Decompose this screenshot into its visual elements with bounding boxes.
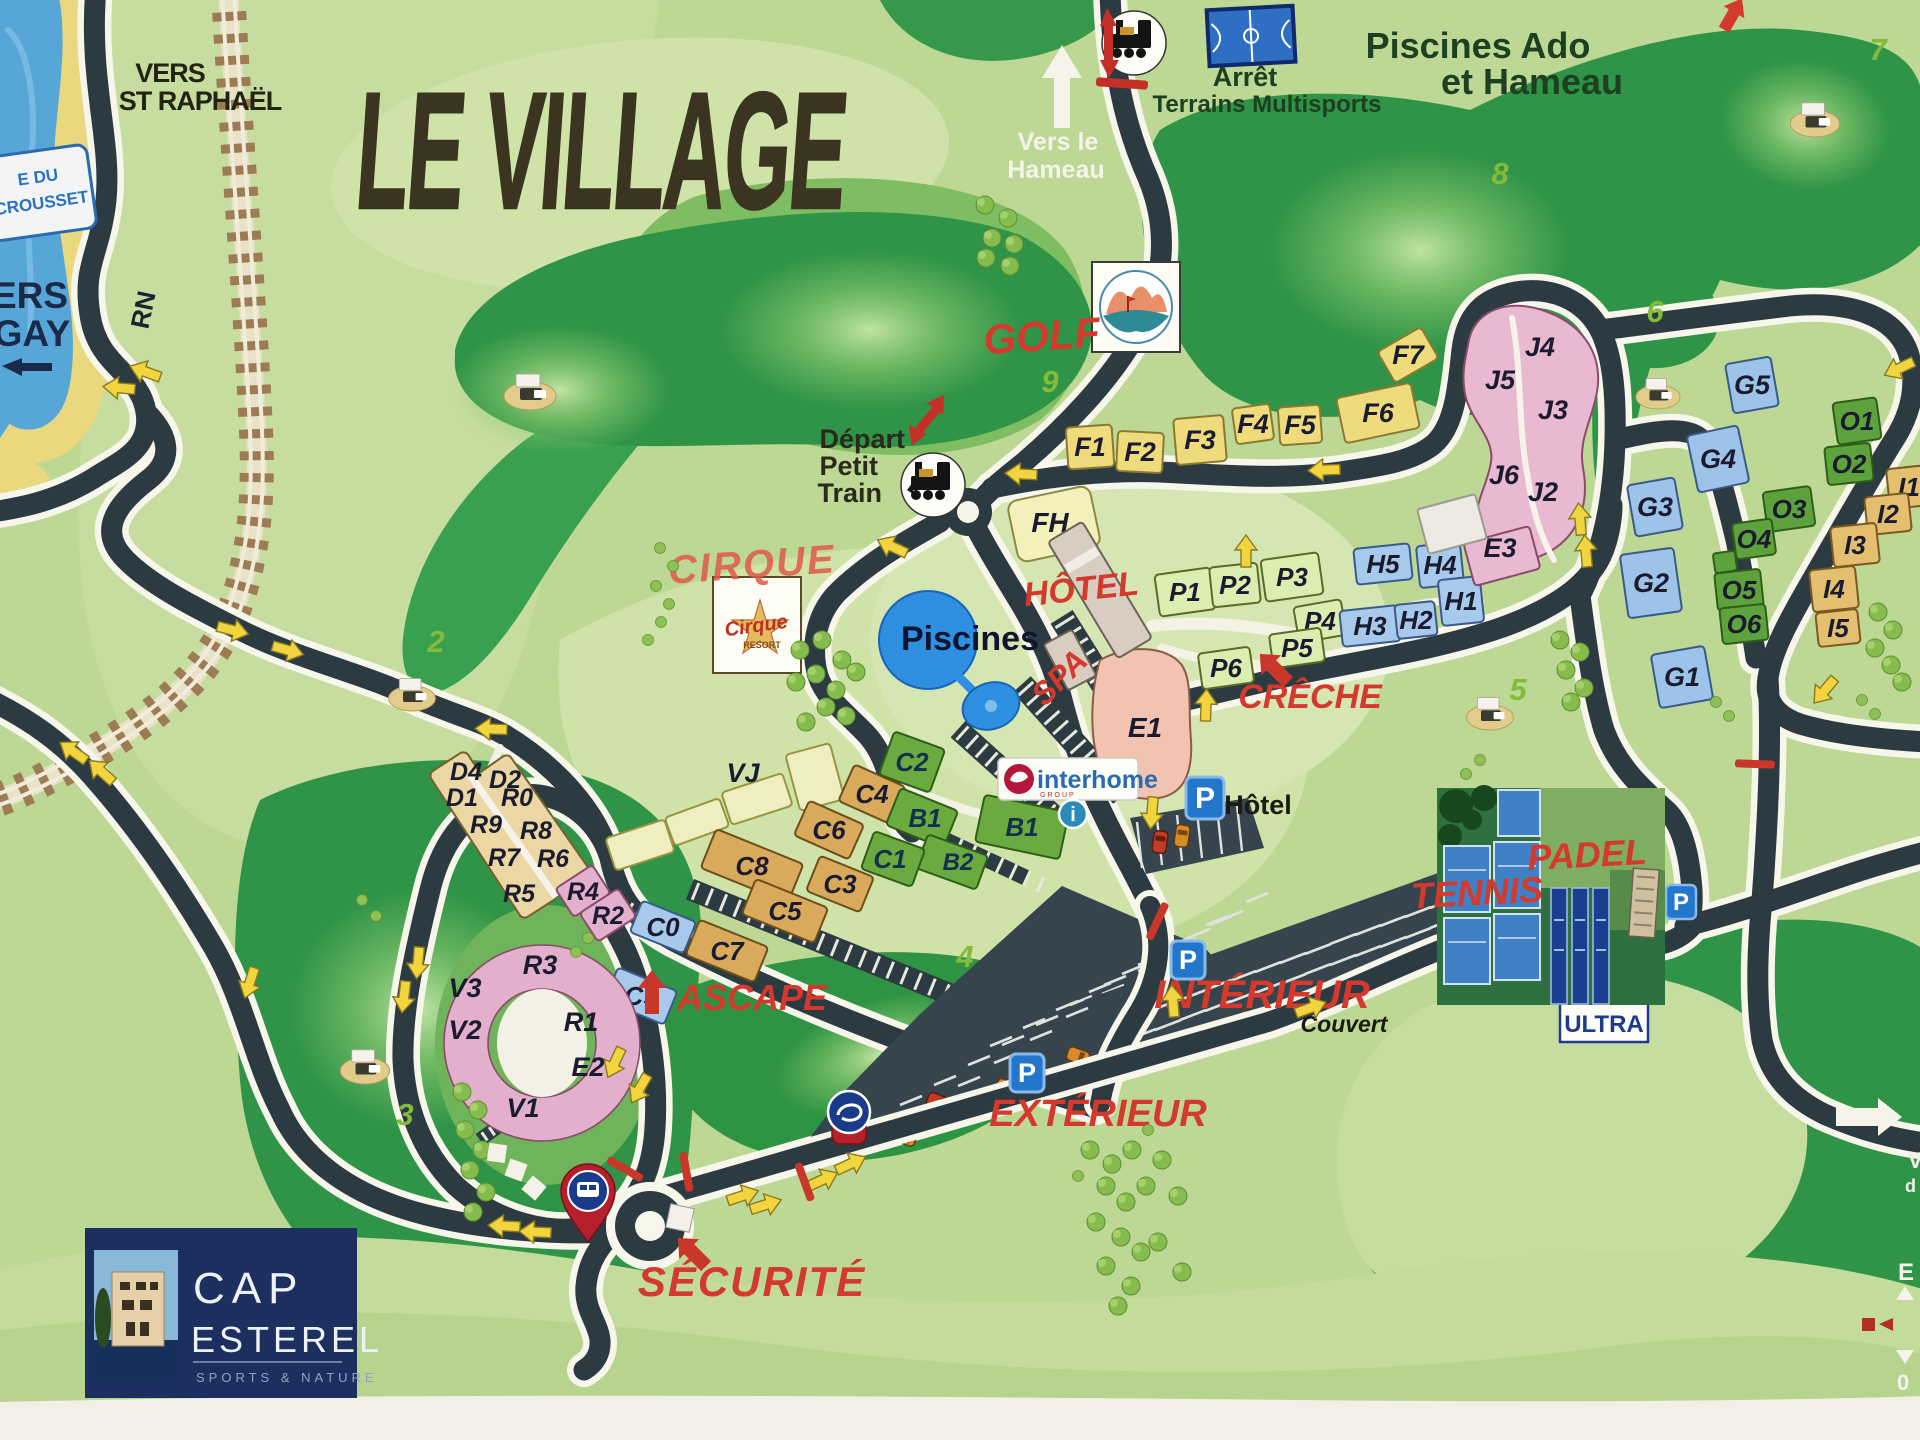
svg-text:Piscines Ado: Piscines Ado [1366,25,1591,66]
svg-text:C2: C2 [895,747,929,777]
svg-text:H3: H3 [1353,611,1387,641]
svg-text:4: 4 [955,939,973,974]
svg-text:C4: C4 [855,779,889,809]
svg-text:P: P [1018,1058,1036,1088]
svg-text:O3: O3 [1772,494,1807,524]
svg-text:Piscines: Piscines [901,620,1039,658]
svg-text:E2: E2 [571,1052,604,1082]
svg-text:B2: B2 [943,849,974,876]
svg-text:8: 8 [1491,156,1509,191]
svg-text:J4: J4 [1525,332,1555,362]
svg-text:R3: R3 [523,950,558,980]
svg-text:Couvert: Couvert [1301,1011,1389,1037]
svg-text:P2: P2 [1219,570,1251,600]
svg-text:G5: G5 [1734,370,1771,400]
svg-text:Train: Train [817,478,882,508]
svg-text:J2: J2 [1528,477,1558,507]
svg-text:V1: V1 [506,1093,539,1123]
svg-text:R5: R5 [503,880,536,908]
svg-text:R8: R8 [520,817,552,845]
svg-text:Arrêt: Arrêt [1213,62,1278,92]
svg-text:0: 0 [1897,1370,1909,1395]
svg-text:O6: O6 [1727,609,1762,639]
svg-text:I5: I5 [1827,613,1849,643]
svg-text:D4: D4 [450,758,482,786]
svg-text:O1: O1 [1840,406,1875,436]
svg-text:B1: B1 [908,803,941,833]
svg-text:P3: P3 [1276,562,1308,592]
svg-text:Hôtel: Hôtel [1224,790,1292,820]
svg-text:H2: H2 [1399,605,1433,635]
svg-text:C5: C5 [768,896,802,926]
svg-text:E: E [1898,1259,1914,1286]
svg-text:F3: F3 [1184,425,1216,455]
svg-text:G4: G4 [1700,444,1736,474]
svg-text:H4: H4 [1423,550,1457,580]
svg-text:ASCAPE: ASCAPE [676,977,828,1018]
svg-text:2: 2 [426,624,444,659]
svg-text:E3: E3 [1483,533,1516,563]
svg-text:I4: I4 [1823,574,1845,604]
svg-text:O5: O5 [1722,575,1757,605]
svg-text:F7: F7 [1392,340,1425,370]
svg-text:9: 9 [1041,364,1059,399]
svg-text:VJ: VJ [726,758,760,788]
svg-text:H5: H5 [1366,549,1400,579]
svg-text:D1: D1 [446,784,478,812]
svg-text:G3: G3 [1637,492,1673,522]
svg-text:3: 3 [396,1097,413,1132]
svg-text:Départ: Départ [819,424,905,454]
svg-text:R6: R6 [537,845,570,873]
svg-text:ESTEREL: ESTEREL [191,1319,383,1360]
svg-text:V3: V3 [448,973,481,1003]
svg-text:LE VILLAGE: LE VILLAGE [351,59,852,244]
svg-text:PADEL: PADEL [1526,831,1647,878]
svg-text:G2: G2 [1633,568,1669,598]
svg-text:J6: J6 [1489,460,1520,490]
svg-text:F2: F2 [1124,437,1156,467]
svg-text:interhome: interhome [1037,766,1158,794]
svg-text:R2: R2 [592,902,624,930]
svg-text:O2: O2 [1832,449,1867,479]
svg-text:CRÊCHE: CRÊCHE [1238,678,1383,716]
svg-text:P: P [1195,782,1215,815]
svg-text:ERS: ERS [0,275,68,316]
svg-text:P1: P1 [1169,577,1201,607]
svg-text:Petit: Petit [819,451,878,481]
svg-text:F5: F5 [1284,410,1316,440]
svg-text:G1: G1 [1664,662,1700,692]
svg-text:et Hameau: et Hameau [1441,61,1623,102]
svg-text:Hameau: Hameau [1007,156,1104,184]
svg-text:P: P [1179,945,1197,975]
svg-text:I3: I3 [1844,530,1866,560]
svg-text:5: 5 [1509,672,1527,707]
svg-text:GAY: GAY [0,313,71,354]
svg-text:GROUP: GROUP [1040,792,1076,799]
svg-text:Terrains Multisports: Terrains Multisports [1153,91,1382,118]
svg-text:CAP: CAP [193,1264,304,1313]
svg-text:J5: J5 [1485,365,1516,395]
svg-text:C0: C0 [646,912,680,942]
svg-text:RESORT: RESORT [743,640,781,650]
svg-text:C8: C8 [735,851,769,881]
svg-text:C6: C6 [812,815,846,845]
svg-text:7: 7 [1869,32,1888,67]
svg-text:J3: J3 [1538,395,1568,425]
svg-text:C3: C3 [823,869,857,899]
svg-text:d: d [1905,1176,1916,1196]
svg-text:VERS: VERS [135,58,205,88]
svg-text:F1: F1 [1074,432,1106,462]
svg-text:F4: F4 [1237,409,1269,439]
svg-text:B1: B1 [1005,812,1038,842]
svg-text:H1: H1 [1444,586,1477,616]
svg-text:6: 6 [1646,294,1664,329]
svg-text:SÉCURITÉ: SÉCURITÉ [638,1258,866,1305]
svg-text:R9: R9 [470,811,502,839]
svg-text:ST RAPHAËL: ST RAPHAËL [119,86,282,116]
svg-text:EXTÉRIEUR: EXTÉRIEUR [989,1091,1207,1135]
svg-text:TENNIS: TENNIS [1410,869,1544,917]
svg-text:V2: V2 [448,1015,481,1045]
svg-text:R0: R0 [501,784,533,812]
svg-text:ULTRA: ULTRA [1564,1011,1644,1038]
svg-text:C7: C7 [710,936,745,966]
svg-text:I2: I2 [1877,499,1899,529]
svg-text:C1: C1 [873,844,906,874]
svg-text:E1: E1 [1128,712,1162,743]
svg-text:R1: R1 [564,1007,599,1037]
svg-text:P5: P5 [1281,633,1313,663]
svg-text:O4: O4 [1737,524,1772,554]
svg-text:Vers le: Vers le [1018,128,1099,156]
svg-text:R7: R7 [488,844,521,872]
svg-text:GOLF: GOLF [982,308,1103,363]
svg-text:V: V [1908,1148,1920,1173]
svg-text:F6: F6 [1362,398,1394,428]
svg-text:i: i [1070,804,1076,826]
svg-text:P: P [1673,889,1689,916]
svg-text:SPORTS & NATURE: SPORTS & NATURE [196,1370,378,1385]
